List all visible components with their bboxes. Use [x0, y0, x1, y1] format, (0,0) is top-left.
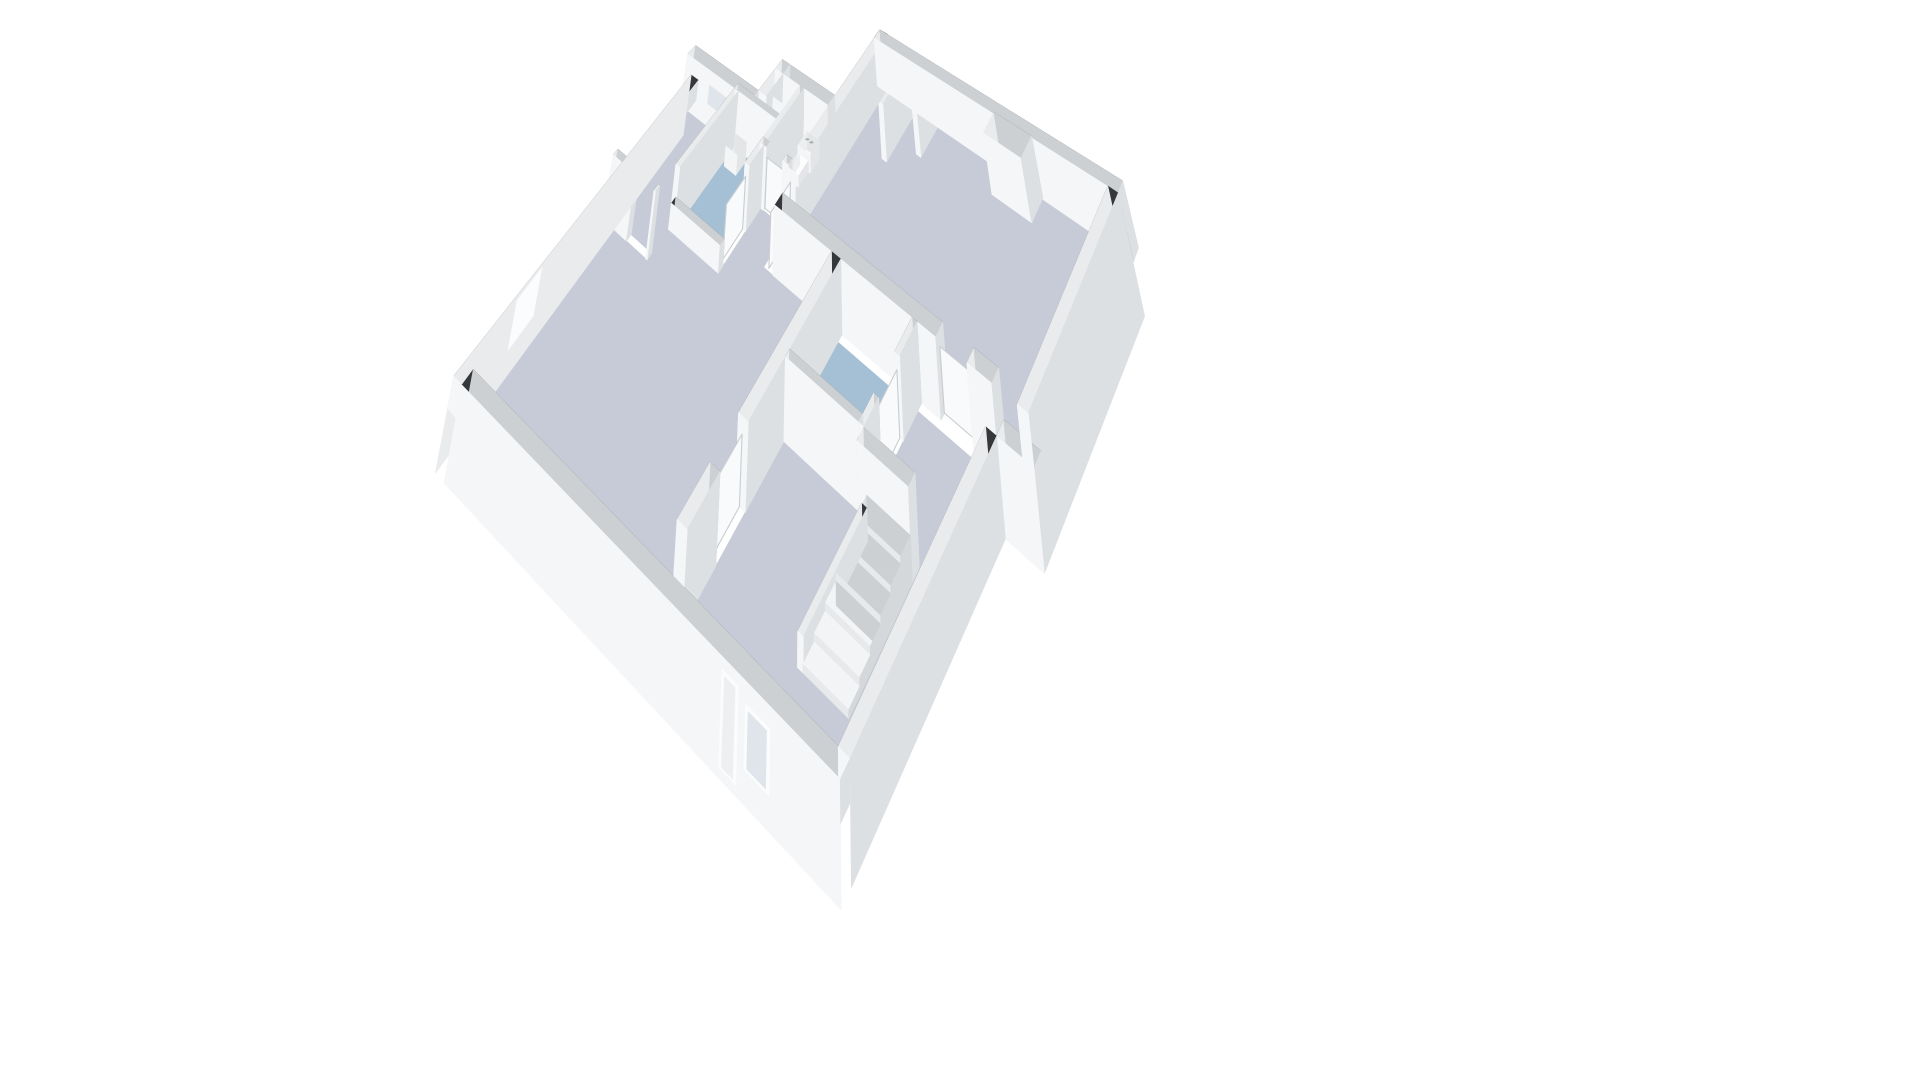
floorplan-canvas: [0, 0, 1920, 1080]
floorplan-3d-render: [0, 0, 1920, 1080]
toilet-flush-button: [805, 138, 809, 140]
toilet-flush-button: [809, 141, 813, 143]
